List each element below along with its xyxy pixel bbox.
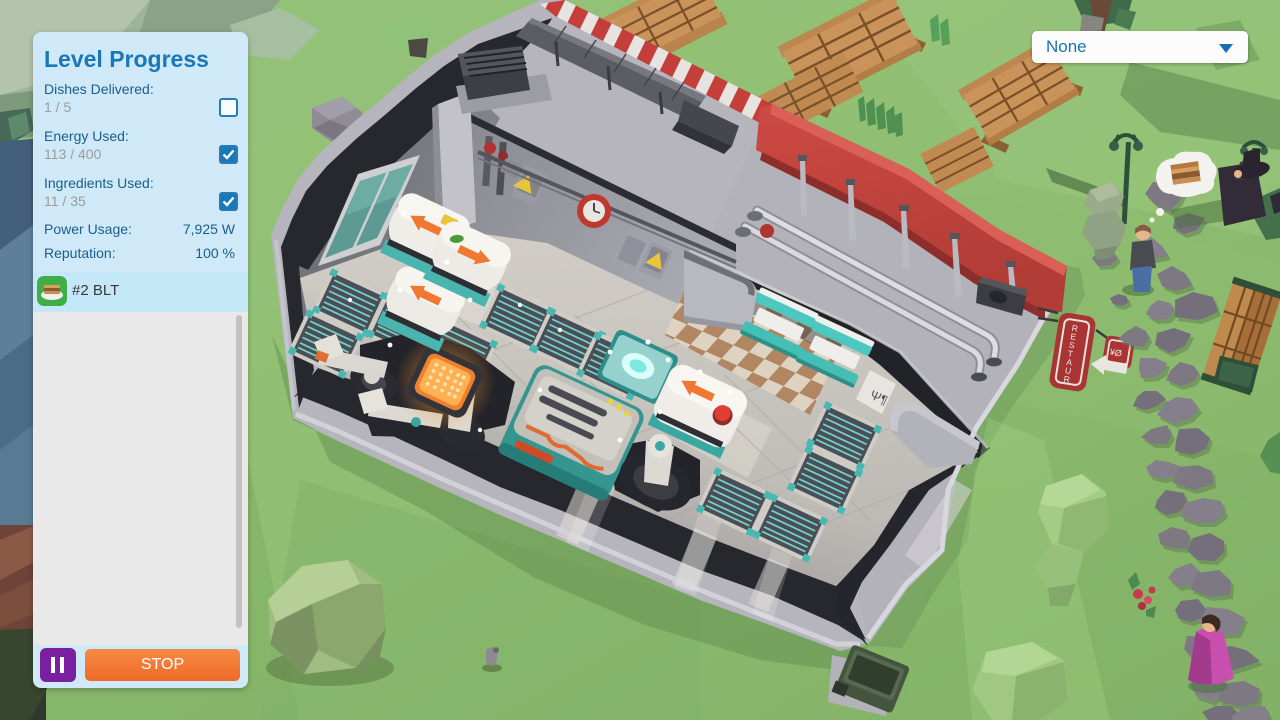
svg-text:¥Ø: ¥Ø (1108, 347, 1122, 359)
